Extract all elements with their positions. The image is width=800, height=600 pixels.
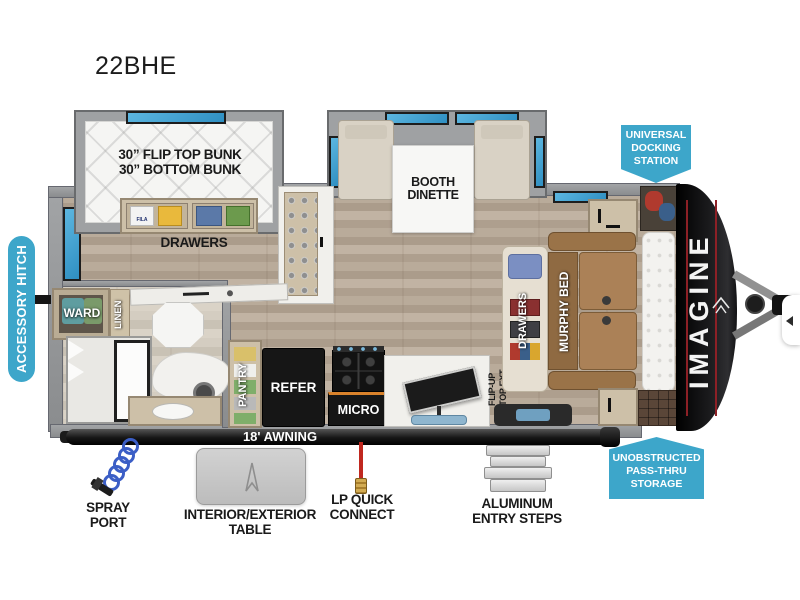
passthru-storage-badge: UNOBSTRUCTED PASS-THRU STORAGE [609,437,704,499]
folded-shirt-white: FILA [130,206,154,226]
lp-hose [359,442,363,480]
dinette-bench-left [338,120,394,200]
bunk-drawers-label: DRAWERS [148,236,240,251]
bed-drawer-column: DRAWERS [502,246,548,392]
table-label: INTERIOR/EXTERIOR TABLE [166,507,334,537]
folded-jeans [196,206,222,226]
accessory-hitch-badge: ACCESSORY HITCH [8,236,35,382]
awning-end-cap-right [600,427,620,447]
floorplan-page: 22BHE 30” FLIP TOP BUNK 30” BOTTOM BUNK … [0,0,800,600]
dinette-bench-right [474,120,530,200]
steps-label: ALUMINUM ENTRY STEPS [458,496,576,526]
pantry-label: PANTRY [238,349,250,421]
sink [152,403,194,420]
refrigerator: REFER [262,348,325,427]
plant [226,206,250,226]
page-title: 22BHE [95,52,177,81]
sink-basin [411,415,467,425]
dinette-label: BOOTH DINETTE [407,176,458,203]
docking-station-badge: UNIVERSAL DOCKING STATION [621,125,691,183]
folded-shirt-yellow [158,206,182,226]
hutch-handle [320,237,323,247]
table-logo-icon [240,459,264,495]
bed-base-drawers [638,390,678,426]
bed-drawers-label: DRAWERS [518,273,530,369]
carousel-prev-button[interactable] [782,295,800,345]
pantry: PANTRY [228,340,262,428]
entry-mat [494,404,572,426]
dinette-table: BOOTH DINETTE [392,145,474,233]
toilet [152,302,204,348]
wardrobe: WARD [52,288,110,340]
exterior-table [196,448,306,505]
bunk-drawer-unit: FILA [120,198,258,234]
dinette-window-left [385,112,449,125]
ward-label: WARD [58,307,106,320]
entry-steps [484,445,554,495]
front-storage-gear [640,186,678,231]
dinette-side-window-right [534,136,545,188]
accessory-hitch-receiver [34,295,51,304]
linen-cabinet: LINEN [110,289,130,339]
bed-base-cabinet [598,388,638,426]
murphy-mattress [642,232,675,392]
awning-bar [66,429,617,445]
bunk-window [126,111,226,124]
lp-label: LP QUICK CONNECT [318,492,406,522]
murphy-bed-label: MURPHY BED [558,268,571,356]
tv [402,366,481,414]
microwave: MICRO [328,392,389,426]
kitchen-counter [384,355,490,427]
vanity [128,396,222,426]
bunk-label: 30” FLIP TOP BUNK 30” BOTTOM BUNK [94,148,266,177]
carousel-prev-icon [786,316,793,326]
linen-label: LINEN [114,293,124,337]
stove [332,350,385,392]
lav-counter [152,352,230,402]
spray-port-hose [96,438,144,494]
murphy-bed-sofa: MURPHY BED [546,232,640,390]
awning-label: 18' AWNING [232,430,328,444]
spray-port-label: SPRAY PORT [70,500,146,530]
